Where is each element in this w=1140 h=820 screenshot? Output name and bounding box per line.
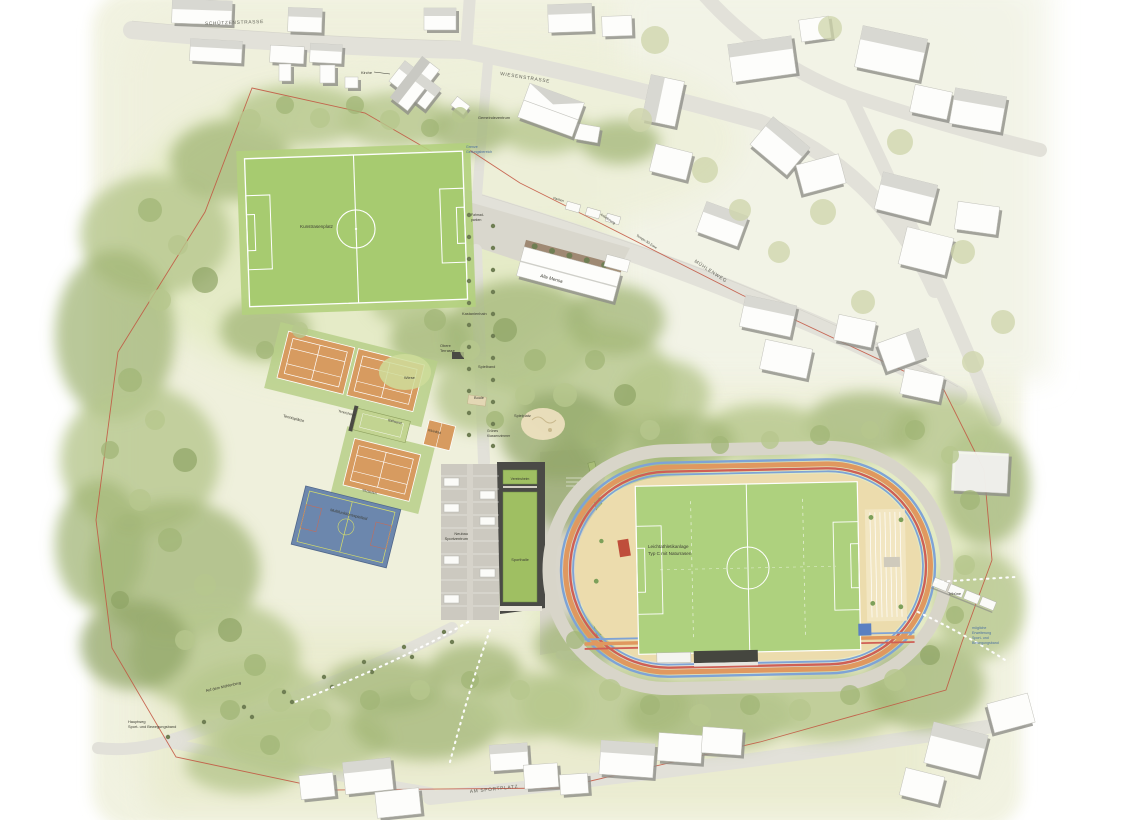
label-neubau-2: Sportzentrum <box>445 536 468 541</box>
label-erweiterung-1: mögliche <box>972 626 986 630</box>
label-kirche: Kirche <box>361 70 372 75</box>
building <box>657 732 706 766</box>
label-wiese: Wiese <box>404 375 415 380</box>
label-fahrradparken-2: parken <box>471 218 481 222</box>
site-plan-drawing: SCHÜTZENSTRASSE WIESENSTRASSE MÜHLENWEG … <box>0 0 1140 820</box>
building <box>599 740 658 781</box>
label-kastanienhain: Kastanienhain <box>462 311 487 316</box>
athletics-track <box>547 445 950 691</box>
building <box>559 773 592 798</box>
soccer-pitch-artificial-turf <box>236 143 476 315</box>
site-plan-canvas: SCHÜTZENSTRASSE WIESENSTRASSE MÜHLENWEG … <box>0 0 1140 820</box>
building <box>602 15 636 39</box>
label-grenze-2: Geltungsbereich <box>466 150 492 154</box>
building <box>320 65 338 86</box>
label-spielplatz: Spielplatz <box>514 413 531 418</box>
label-klassenzimmer-2: Klassenzimmer <box>487 434 511 438</box>
label-vereinsheim: Vereinsheim <box>511 477 530 481</box>
building <box>279 64 294 84</box>
building <box>299 772 339 803</box>
building <box>189 39 245 67</box>
label-spielband: Spielband <box>478 364 495 369</box>
label-leichtathletik-1: Leichtathletikanlage <box>648 544 689 549</box>
long-jump-area <box>865 509 907 622</box>
building <box>375 787 425 820</box>
label-erweiterung-4: Bewegungsband <box>972 641 999 645</box>
meadow <box>379 354 431 390</box>
label-kunstrasenplatz: Kunstrasenplatz <box>300 224 334 229</box>
building <box>548 3 596 36</box>
building <box>523 763 562 793</box>
label-leichtathletik-2: Typ C mit Naturrasen <box>648 551 692 556</box>
label-fahrradparken-1: Fahrrad- <box>471 213 484 217</box>
label-hauptweg-2: Sport- und Bewegungsband <box>128 724 176 729</box>
building <box>954 201 1003 238</box>
label-sporthalle: Sporthalle <box>511 557 529 562</box>
label-obere-terrasse-2: Terrasse <box>440 348 455 353</box>
building <box>424 8 459 33</box>
label-erweiterung-2: Erweiterung <box>972 631 991 635</box>
label-tribuene: Tribüne <box>948 591 961 596</box>
building <box>287 7 325 35</box>
label-erweiterung-3: Sport- und <box>972 636 989 640</box>
label-gemeindezentrum: Gemeindezentrum <box>478 115 510 120</box>
label-boule: Boule <box>474 395 484 400</box>
sports-hall-building <box>497 462 545 614</box>
building <box>951 451 1012 497</box>
high-jump-mat <box>858 623 871 635</box>
building <box>269 45 307 67</box>
label-grenze-1: Grenze <box>466 145 478 149</box>
building <box>309 43 345 67</box>
street-branch-top <box>466 0 470 52</box>
track-infield-pitch <box>635 482 860 655</box>
label-klassenzimmer-1: Grünes <box>487 429 498 433</box>
building <box>701 727 746 759</box>
